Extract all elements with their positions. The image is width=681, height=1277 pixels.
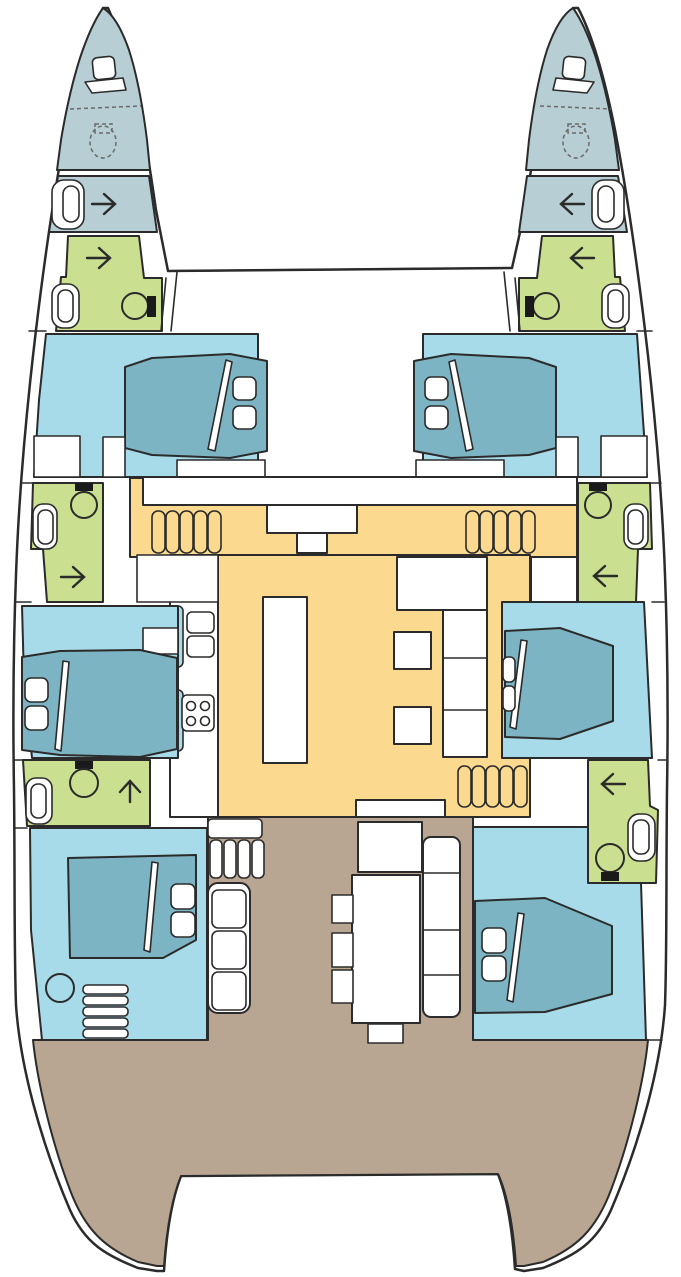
deck-hatch-icon	[562, 56, 586, 80]
chair-icon	[332, 933, 353, 967]
chair-icon	[368, 1024, 403, 1043]
stove-icon	[182, 695, 214, 731]
port-mid-cabin	[22, 606, 178, 758]
deck-plan	[0, 0, 681, 1277]
porthole-icon	[38, 510, 53, 544]
pillow-icon	[171, 884, 195, 909]
pillow-icon	[482, 956, 506, 981]
cockpit-seat	[358, 822, 422, 872]
starboard-forepeak	[526, 8, 619, 170]
starboard-bow-compartment	[519, 176, 627, 232]
porthole-icon	[608, 290, 623, 322]
pillow-icon	[171, 912, 195, 937]
galley-counter-top	[137, 555, 218, 602]
starboard-mid-cabin	[502, 602, 652, 758]
cockpit-table-icon	[352, 875, 420, 1023]
deck-hatch-icon	[92, 56, 116, 80]
pillow-icon	[503, 686, 515, 711]
stairs-icon	[458, 766, 527, 807]
coffee-table-icon	[394, 707, 431, 744]
deck-plan-drawing	[0, 0, 681, 1277]
porthole-icon	[58, 290, 73, 322]
port-aft-head	[23, 760, 150, 826]
port-forepeak	[57, 8, 150, 170]
galley-island-icon	[263, 597, 307, 763]
mast-post	[297, 533, 327, 553]
starboard-forward-cabin	[414, 334, 647, 477]
pillow-icon	[425, 377, 448, 400]
pillow-icon	[425, 406, 448, 429]
porthole-icon	[31, 784, 46, 818]
forward-bulkhead-band	[143, 477, 577, 505]
porthole-icon	[63, 186, 79, 222]
pillow-icon	[482, 928, 506, 953]
port-forward-cabin	[34, 334, 267, 477]
sideboard	[531, 557, 577, 602]
stairs-icon	[152, 511, 221, 553]
wardrobe	[601, 436, 647, 477]
chair-icon	[332, 895, 353, 923]
pillow-icon	[233, 377, 256, 400]
pillow-icon	[25, 678, 48, 702]
cabinet	[103, 437, 125, 477]
pillow-icon	[503, 657, 515, 682]
porthole-icon	[628, 510, 643, 544]
cockpit-bench-icon	[208, 883, 250, 1013]
pillow-icon	[25, 706, 48, 730]
wardrobe	[34, 436, 80, 477]
porthole-icon	[633, 820, 649, 854]
port-bow-compartment	[49, 176, 157, 232]
stool-icon	[46, 974, 74, 1002]
cabinet	[556, 437, 578, 477]
cockpit-door	[356, 800, 445, 817]
berth-foot-locker	[177, 460, 265, 477]
ladder-icon	[83, 985, 128, 1038]
porthole-icon	[598, 186, 614, 222]
port-aft-cabin	[30, 828, 207, 1040]
pillow-icon	[233, 406, 256, 429]
berth-foot-locker	[416, 460, 504, 477]
nav-console	[267, 505, 357, 533]
coffee-table-icon	[394, 632, 431, 669]
wardrobe	[143, 628, 178, 654]
bed-icon	[22, 650, 177, 757]
stairs-icon	[466, 511, 535, 553]
starboard-aft-head	[588, 760, 658, 883]
stairs-icon	[208, 819, 264, 878]
chair-icon	[332, 970, 353, 1003]
cockpit-bench-icon	[423, 837, 460, 1017]
